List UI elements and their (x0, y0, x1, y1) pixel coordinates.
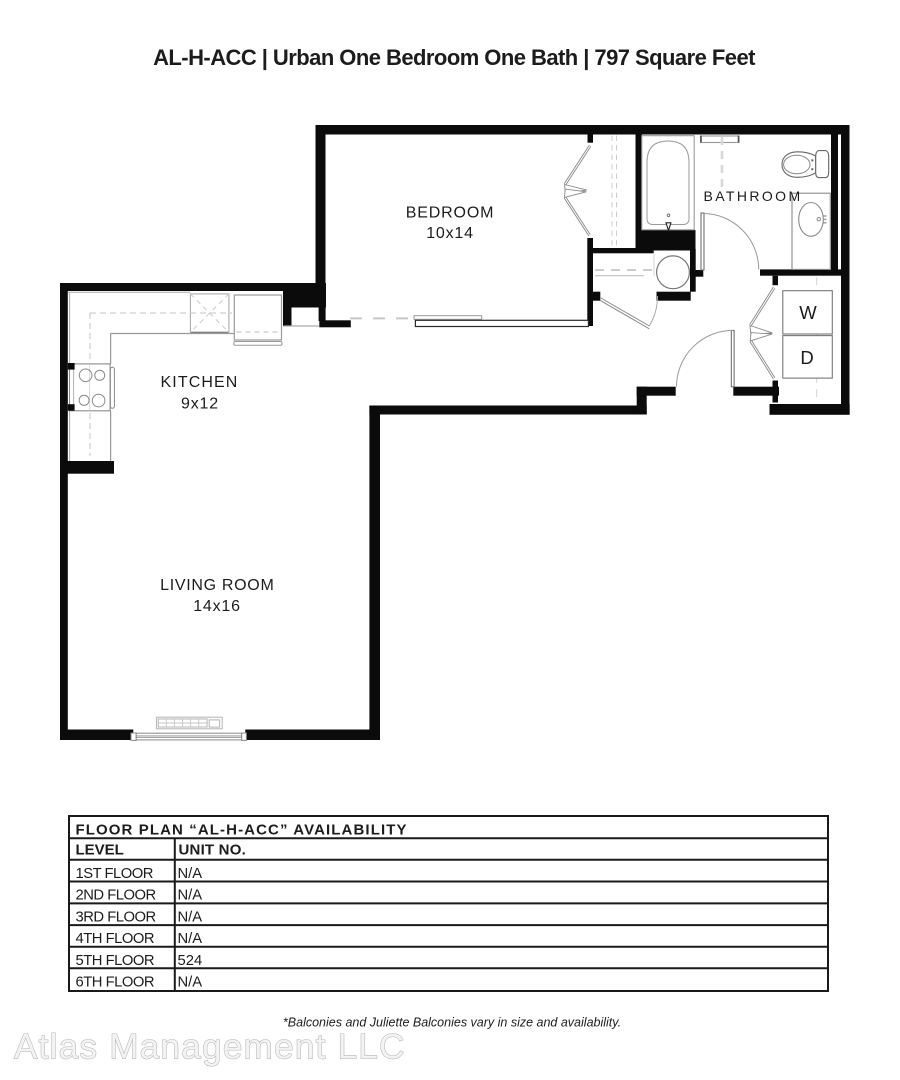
svg-text:N/A: N/A (178, 866, 203, 882)
svg-text:5TH FLOOR: 5TH FLOOR (76, 953, 155, 969)
svg-text:UNIT NO.: UNIT NO. (179, 842, 246, 859)
svg-text:1ST FLOOR: 1ST FLOOR (76, 866, 153, 882)
svg-text:LEVEL: LEVEL (76, 842, 124, 859)
svg-text:3RD FLOOR: 3RD FLOOR (76, 910, 156, 926)
svg-text:14x16: 14x16 (193, 598, 241, 615)
svg-text:BATHROOM: BATHROOM (703, 188, 802, 204)
svg-text:BEDROOM: BEDROOM (406, 204, 495, 221)
svg-text:Atlas Management LLC: Atlas Management LLC (14, 1028, 406, 1067)
svg-text:LIVING ROOM: LIVING ROOM (160, 577, 274, 594)
svg-text:N/A: N/A (178, 888, 203, 904)
svg-text:10x14: 10x14 (426, 225, 474, 242)
svg-text:4TH FLOOR: 4TH FLOOR (76, 931, 155, 947)
svg-text:6TH FLOOR: 6TH FLOOR (76, 975, 155, 991)
svg-text:W: W (799, 302, 817, 323)
svg-text:9x12: 9x12 (181, 395, 219, 412)
svg-text:AL-H-ACC | Urban One Bedroom O: AL-H-ACC | Urban One Bedroom One Bath | … (153, 45, 756, 70)
svg-text:FLOOR PLAN “AL-H-ACC” AVAILABI: FLOOR PLAN “AL-H-ACC” AVAILABILITY (76, 821, 408, 838)
svg-text:2ND FLOOR: 2ND FLOOR (76, 888, 156, 904)
svg-text:524: 524 (178, 953, 203, 969)
svg-text:D: D (800, 347, 813, 368)
svg-text:N/A: N/A (178, 975, 203, 991)
svg-text:KITCHEN: KITCHEN (161, 374, 239, 391)
svg-text:N/A: N/A (178, 910, 203, 926)
svg-text:N/A: N/A (178, 931, 203, 947)
